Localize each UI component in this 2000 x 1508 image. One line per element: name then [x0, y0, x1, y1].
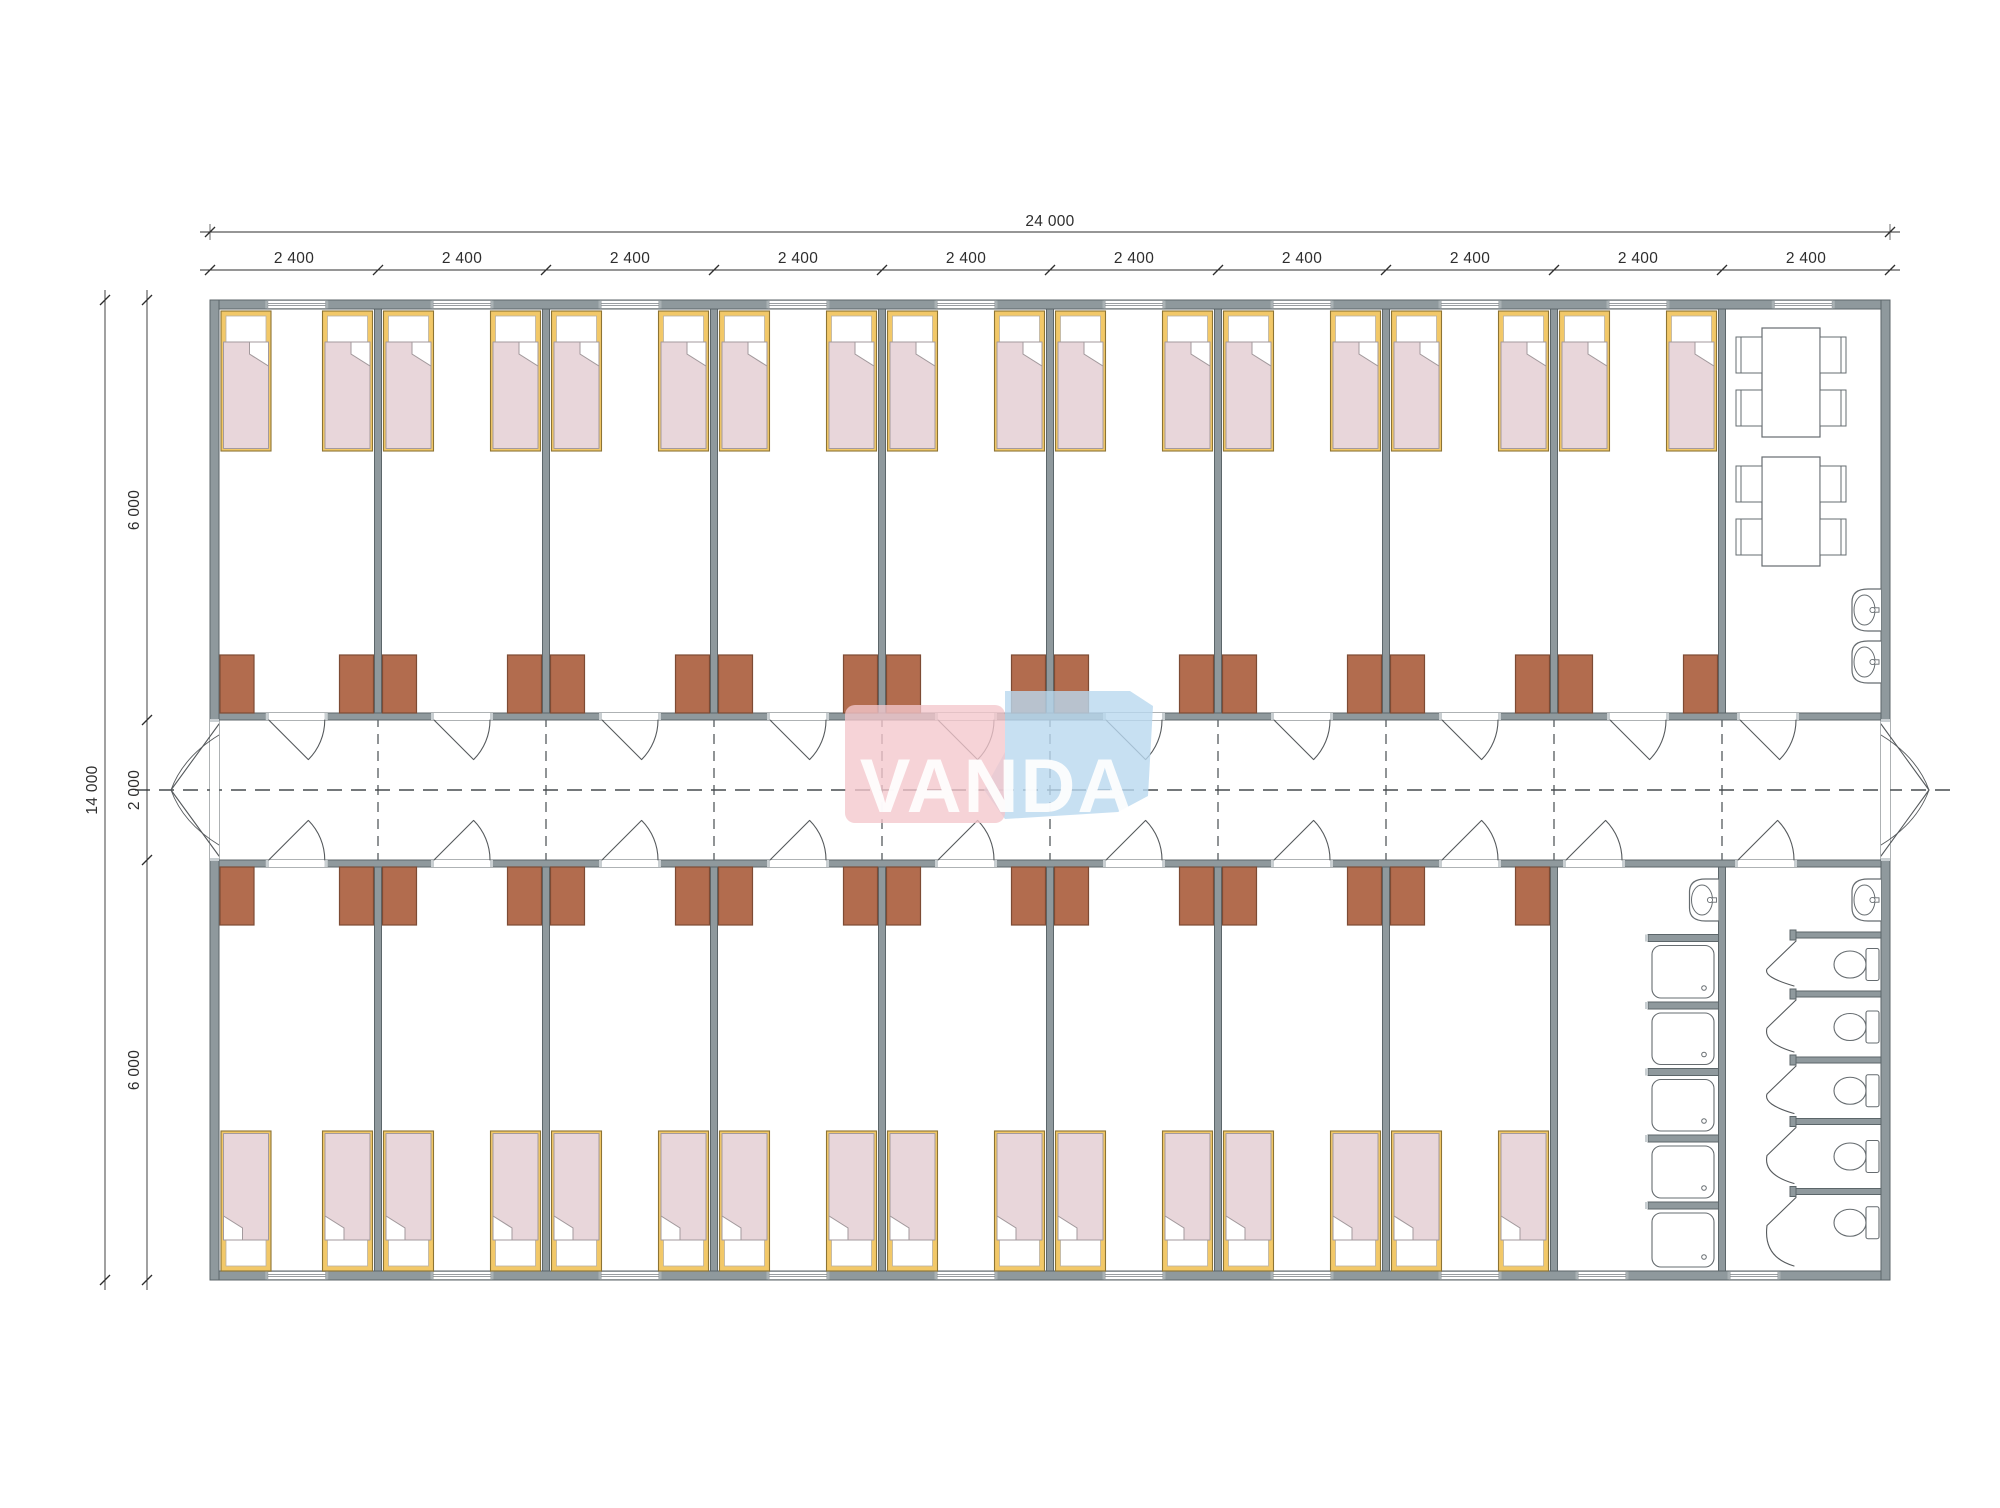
bed-pillow [1000, 316, 1040, 343]
wall-cap [1645, 1135, 1648, 1142]
wardrobe [1012, 867, 1046, 925]
wardrobe-box [551, 655, 585, 713]
window-cap [659, 1272, 662, 1280]
chair-back [1736, 390, 1741, 426]
wardrobe [551, 655, 585, 713]
bed [1560, 311, 1610, 451]
chair-seat [1741, 519, 1762, 555]
wall-cap [1735, 860, 1738, 867]
wall-cap [1498, 713, 1501, 720]
window-cap [995, 1272, 998, 1280]
toilet-tank [1866, 1207, 1879, 1239]
wardrobe-box [887, 867, 921, 925]
partition-wall-bottom [543, 867, 550, 1271]
partition-wall-top [375, 309, 382, 713]
window-cap [491, 1272, 494, 1280]
wardrobe [844, 655, 878, 713]
partition-wall-bottom [375, 867, 382, 1271]
partition-wall-bottom [1719, 867, 1726, 1271]
wall-cap [1330, 713, 1333, 720]
door-swing [770, 820, 826, 860]
chair-seat [1820, 337, 1841, 373]
stall-door-swing [1767, 1000, 1796, 1052]
wall-cap [1439, 860, 1442, 867]
chair-back [1736, 519, 1741, 555]
bed [888, 311, 938, 451]
sink-tap-knob [1870, 659, 1875, 664]
bed [1163, 311, 1213, 451]
window-cap [1439, 1272, 1442, 1280]
wardrobe-box [220, 867, 254, 925]
bed [1392, 311, 1442, 451]
wardrobe-box [1180, 655, 1214, 713]
wall-cap [1330, 860, 1333, 867]
stall-partition [1796, 1057, 1881, 1063]
chair-back [1841, 337, 1846, 373]
window-opening [268, 1272, 326, 1280]
wardrobe [340, 655, 374, 713]
wardrobe-box [1391, 655, 1425, 713]
shower-partition [1648, 935, 1719, 942]
wardrobe-box [508, 867, 542, 925]
wardrobe-box [383, 655, 417, 713]
door-swing [1738, 820, 1794, 860]
window-opening [1730, 1272, 1778, 1280]
window-cap [1163, 1272, 1166, 1280]
wall-opening [434, 860, 490, 867]
wardrobe-box [220, 655, 254, 713]
wall-opening [1274, 860, 1330, 867]
wardrobe [508, 655, 542, 713]
bed [1331, 1131, 1381, 1271]
bed [491, 311, 541, 451]
wall-cap [1498, 860, 1501, 867]
wardrobe-box [340, 655, 374, 713]
dim-label-bay: 2 400 [1786, 250, 1826, 267]
bed [552, 311, 602, 451]
partition-wall-top [879, 309, 886, 713]
toilet-bowl [1834, 951, 1866, 978]
door-swing [1566, 820, 1622, 860]
door-swing [1274, 720, 1330, 760]
chair [1820, 519, 1846, 555]
stall-partition [1796, 932, 1881, 938]
shower-drain [1702, 1052, 1707, 1057]
toilet [1834, 1075, 1879, 1107]
dim-label-bay: 2 400 [1282, 250, 1322, 267]
wall-cap [1271, 713, 1274, 720]
stall-door-swing [1767, 1128, 1796, 1184]
wall-cap [266, 860, 269, 867]
chair-seat [1741, 466, 1762, 502]
floor-plan-canvas: 24 0002 4002 4002 4002 4002 4002 4002 40… [0, 0, 2000, 1508]
wardrobe-box [844, 655, 878, 713]
door-swing [770, 720, 826, 760]
wardrobe [1391, 655, 1425, 713]
wall-opening [1442, 713, 1498, 720]
bed-pillow [664, 1239, 704, 1266]
wall-sink [1852, 641, 1881, 683]
wardrobe [676, 867, 710, 925]
window-cap [265, 301, 268, 309]
bed-pillow [496, 316, 536, 343]
bed-pillow [328, 1239, 368, 1266]
dim-label-bay: 2 400 [1114, 250, 1154, 267]
door-swing [434, 720, 490, 760]
wardrobe [719, 867, 753, 925]
shower-drain [1702, 1255, 1707, 1260]
wardrobe-box [887, 655, 921, 713]
shower-tray [1652, 1080, 1714, 1132]
wall-opening [770, 713, 826, 720]
window-opening [1441, 1272, 1499, 1280]
bed-pillow [893, 1239, 933, 1266]
dim-label-bay: 2 400 [778, 250, 818, 267]
wall-cap [1796, 713, 1799, 720]
toilet-tank [1866, 1011, 1879, 1043]
stall-door-swing [1767, 1198, 1796, 1267]
wall-opening [1274, 713, 1330, 720]
wall-cap [935, 860, 938, 867]
wardrobe [508, 867, 542, 925]
window-cap [1499, 301, 1502, 309]
window-opening [433, 301, 491, 309]
wall-cap [490, 860, 493, 867]
toilet-tank [1866, 949, 1879, 981]
dim-label-bay: 2 400 [274, 250, 314, 267]
sink-tap-knob [1707, 897, 1712, 902]
toilet [1834, 1011, 1879, 1043]
wardrobe [676, 655, 710, 713]
bed-pillow [725, 1239, 765, 1266]
wall-cap [431, 860, 434, 867]
window-cap [1626, 1272, 1629, 1280]
wardrobe-box [844, 867, 878, 925]
window-opening [937, 301, 995, 309]
chair-back [1841, 519, 1846, 555]
wall-cap [826, 713, 829, 720]
bed [659, 1131, 709, 1271]
wardrobe [1559, 655, 1593, 713]
wardrobe-box [1012, 867, 1046, 925]
dim-label-segment: 6 000 [126, 1050, 143, 1090]
partition-wall-bottom [1047, 867, 1054, 1271]
chair-seat [1820, 466, 1841, 502]
window-cap [599, 301, 602, 309]
bed-pillow [496, 1239, 536, 1266]
bed [827, 311, 877, 451]
door-swing [434, 820, 490, 860]
bed [1667, 311, 1717, 451]
window-cap [1331, 1272, 1334, 1280]
wardrobe [887, 867, 921, 925]
shower-tray [1652, 1146, 1714, 1198]
window-cap [1103, 1272, 1106, 1280]
stall-partition [1796, 1189, 1881, 1195]
wall-cap [599, 860, 602, 867]
bed-pillow [1672, 316, 1712, 343]
chair-seat [1741, 337, 1762, 373]
window-cap [1728, 1272, 1731, 1280]
dining-table [1762, 457, 1820, 566]
window-opening [1441, 301, 1499, 309]
wardrobe [551, 867, 585, 925]
partition-wall-top [1383, 309, 1390, 713]
bed [1331, 311, 1381, 451]
partition-wall-bottom [879, 867, 886, 1271]
shower-partition [1648, 1069, 1719, 1076]
bed-pillow [832, 1239, 872, 1266]
wall-cap [490, 713, 493, 720]
window-cap [491, 301, 494, 309]
window-cap [265, 1272, 268, 1280]
dining-table-top [1762, 328, 1820, 437]
wardrobe-box [1223, 655, 1257, 713]
window-opening [1609, 301, 1667, 309]
window-cap [995, 301, 998, 309]
bed-pillow [1397, 316, 1437, 343]
bed-pillow [1336, 1239, 1376, 1266]
bed-pillow [1229, 316, 1269, 343]
shower-tray [1652, 1013, 1714, 1065]
wall-cap [1439, 713, 1442, 720]
wall-cap [767, 713, 770, 720]
partition-wall-bottom [1215, 867, 1222, 1271]
bed [384, 1131, 434, 1271]
chair [1736, 390, 1762, 426]
wall-cap [1666, 713, 1669, 720]
wardrobe-box [1684, 655, 1718, 713]
window-cap [326, 301, 329, 309]
partition-wall-top [711, 309, 718, 713]
dim-label-segment: 2 000 [126, 770, 143, 810]
chair [1736, 337, 1762, 373]
stall-door-post [1790, 1055, 1796, 1065]
dining-table-top [1762, 457, 1820, 566]
dim-label-bay: 2 400 [946, 250, 986, 267]
toilet-bowl [1834, 1143, 1866, 1170]
shower-partition [1648, 1002, 1719, 1009]
wardrobe [1348, 655, 1382, 713]
bed [1499, 311, 1549, 451]
toilet-tank [1866, 1141, 1879, 1173]
chair-seat [1820, 519, 1841, 555]
window-opening [937, 1272, 995, 1280]
bed [1056, 1131, 1106, 1271]
bed [1056, 311, 1106, 451]
bed [1224, 311, 1274, 451]
wardrobe-box [383, 867, 417, 925]
stall-door-swing [1767, 1066, 1796, 1114]
wall-opening [770, 860, 826, 867]
wall-cap [1794, 860, 1797, 867]
bed-pillow [1229, 1239, 1269, 1266]
bed [552, 1131, 602, 1271]
wardrobe [1223, 655, 1257, 713]
bed-pillow [389, 1239, 429, 1266]
bed-pillow [1168, 1239, 1208, 1266]
partition-wall-top [1215, 309, 1222, 713]
bed [1163, 1131, 1213, 1271]
wardrobe [719, 655, 753, 713]
bed [659, 311, 709, 451]
door-swing [269, 820, 325, 860]
wardrobe [1055, 867, 1089, 925]
wardrobe-box [719, 655, 753, 713]
wall-cap [431, 713, 434, 720]
toilet [1834, 949, 1879, 981]
chair-back [1736, 337, 1741, 373]
window-cap [431, 301, 434, 309]
shower-drain [1702, 986, 1707, 991]
chair-seat [1820, 390, 1841, 426]
toilet [1834, 1207, 1879, 1239]
wardrobe-box [1391, 867, 1425, 925]
wall-sink [1852, 879, 1881, 921]
window-cap [935, 1272, 938, 1280]
bed [1224, 1131, 1274, 1271]
wardrobe [1391, 867, 1425, 925]
bed [1499, 1131, 1549, 1271]
partition-wall-top [1551, 309, 1558, 713]
chair-back [1841, 390, 1846, 426]
wall-cap [1881, 719, 1890, 722]
shower-tray [1652, 946, 1714, 999]
wardrobe-box [1223, 867, 1257, 925]
dim-label-bay: 2 400 [610, 250, 650, 267]
wall-cap [1645, 1002, 1648, 1009]
window-cap [659, 301, 662, 309]
window-opening [1273, 1272, 1331, 1280]
dining-table [1762, 328, 1820, 437]
bed [384, 311, 434, 451]
stall-partition [1796, 1119, 1881, 1125]
bed-pillow [328, 316, 368, 343]
wall-cap [325, 860, 328, 867]
window-opening [433, 1272, 491, 1280]
wall-cap [1881, 858, 1890, 861]
partition-wall-top [1047, 309, 1054, 713]
window-opening [601, 1272, 659, 1280]
bed-pillow [1504, 316, 1544, 343]
partition-wall-bottom [1383, 867, 1390, 1271]
chair [1820, 466, 1846, 502]
wall-opening [1566, 860, 1622, 867]
wall-opening [602, 860, 658, 867]
bed [995, 1131, 1045, 1271]
door-swing [1274, 820, 1330, 860]
wall-opening [602, 713, 658, 720]
wall-cap [1645, 1069, 1648, 1076]
wall-opening [434, 713, 490, 720]
window-cap [1439, 301, 1442, 309]
wall-opening [1442, 860, 1498, 867]
wardrobe [1684, 655, 1718, 713]
bed-pillow [1061, 1239, 1101, 1266]
wall-cap [658, 713, 661, 720]
window-opening [1105, 301, 1163, 309]
toilet-bowl [1834, 1014, 1866, 1041]
wall-cap [1103, 860, 1106, 867]
sink-tap-knob [1870, 897, 1875, 902]
stall-door-swing [1767, 941, 1796, 986]
bed-pillow [226, 1239, 266, 1266]
wall-opening [1881, 722, 1890, 858]
window-opening [1578, 1272, 1626, 1280]
window-cap [431, 1272, 434, 1280]
wardrobe-box [719, 867, 753, 925]
stall-door-post [1790, 1187, 1796, 1197]
partition-wall-top [1719, 309, 1726, 713]
chair [1820, 337, 1846, 373]
wardrobe-box [1055, 867, 1089, 925]
door-swing [602, 820, 658, 860]
wall-cap [826, 860, 829, 867]
bed [995, 311, 1045, 451]
wall-cap [325, 713, 328, 720]
window-cap [1103, 301, 1106, 309]
bed-pillow [1397, 1239, 1437, 1266]
wardrobe [1180, 867, 1214, 925]
chair [1736, 466, 1762, 502]
wardrobe-box [1348, 867, 1382, 925]
shower-drain [1702, 1119, 1707, 1124]
partition-wall-top [543, 309, 550, 713]
bed-pillow [1000, 1239, 1040, 1266]
wardrobe-box [676, 867, 710, 925]
wall-cap [1645, 935, 1648, 942]
window-opening [1273, 301, 1331, 309]
dim-label-bay: 2 400 [442, 250, 482, 267]
shower-partition [1648, 1202, 1719, 1209]
bed [491, 1131, 541, 1271]
toilet-bowl [1834, 1209, 1866, 1236]
dim-label-segment: 6 000 [126, 490, 143, 530]
wall-opening [269, 713, 325, 720]
bed [827, 1131, 877, 1271]
wardrobe-box [340, 867, 374, 925]
wall-cap [1271, 860, 1274, 867]
wall-cap [1607, 713, 1610, 720]
wardrobe-box [1180, 867, 1214, 925]
window-opening [769, 1272, 827, 1280]
wall-opening [1740, 713, 1796, 720]
wall-opening [210, 722, 219, 858]
wall-cap [266, 713, 269, 720]
wardrobe [383, 655, 417, 713]
wardrobe [887, 655, 921, 713]
stall-door-post [1790, 989, 1796, 999]
window-cap [827, 301, 830, 309]
chair-back [1736, 466, 1741, 502]
wardrobe [1223, 867, 1257, 925]
bed [323, 1131, 373, 1271]
window-opening [601, 301, 659, 309]
wall-cap [1162, 860, 1165, 867]
wall-cap [599, 713, 602, 720]
bed [720, 311, 770, 451]
bed-pillow [664, 316, 704, 343]
wall-sink [1690, 879, 1719, 921]
bed [888, 1131, 938, 1271]
partition-wall-bottom [711, 867, 718, 1271]
window-cap [1667, 301, 1670, 309]
window-cap [767, 301, 770, 309]
sink-tap-knob [1870, 607, 1875, 612]
window-cap [1271, 301, 1274, 309]
window-cap [1778, 1272, 1781, 1280]
toilet-bowl [1834, 1077, 1866, 1104]
